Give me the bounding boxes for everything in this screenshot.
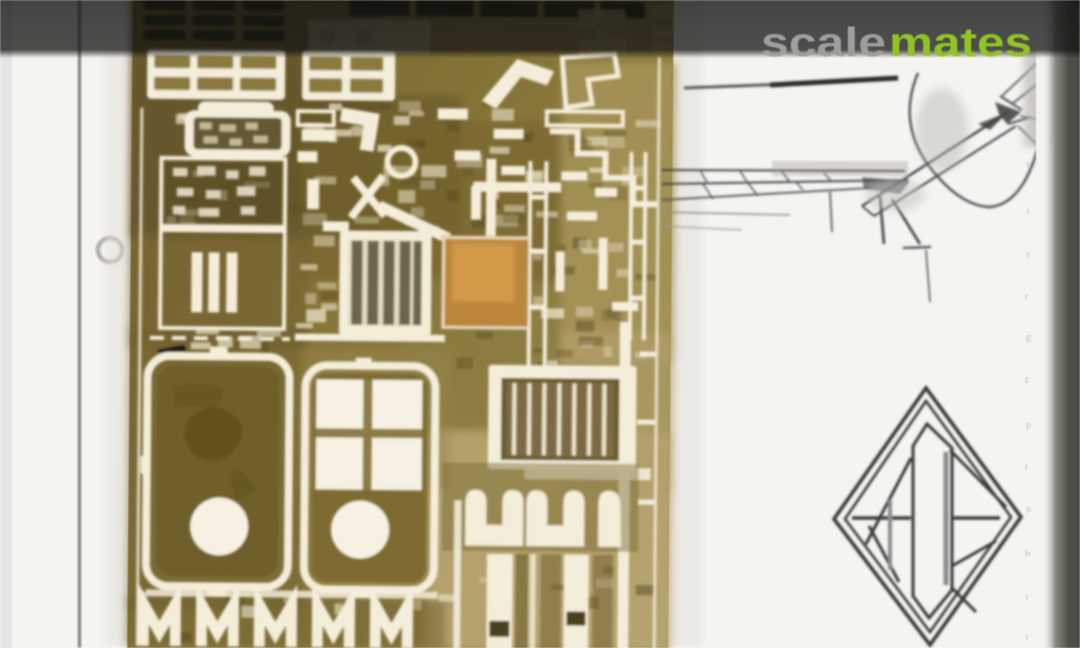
svg-text:ι: ι: [1027, 112, 1029, 122]
svg-text:τ: τ: [1026, 160, 1030, 170]
svg-text:scale: scale: [761, 19, 886, 65]
svg-text:mates: mates: [889, 19, 1032, 65]
svg-text:ι: ι: [1027, 206, 1029, 216]
svg-text:о: о: [1026, 504, 1031, 514]
svg-text:ι: ι: [1026, 632, 1028, 642]
svg-text:р: р: [1026, 420, 1031, 430]
svg-text:ι: ι: [1026, 592, 1028, 602]
svg-text:Е: Е: [1026, 334, 1032, 344]
svg-text:τ: τ: [1026, 250, 1030, 260]
svg-text:F: F: [1025, 376, 1031, 386]
svg-text:Ь: Ь: [1025, 548, 1031, 558]
